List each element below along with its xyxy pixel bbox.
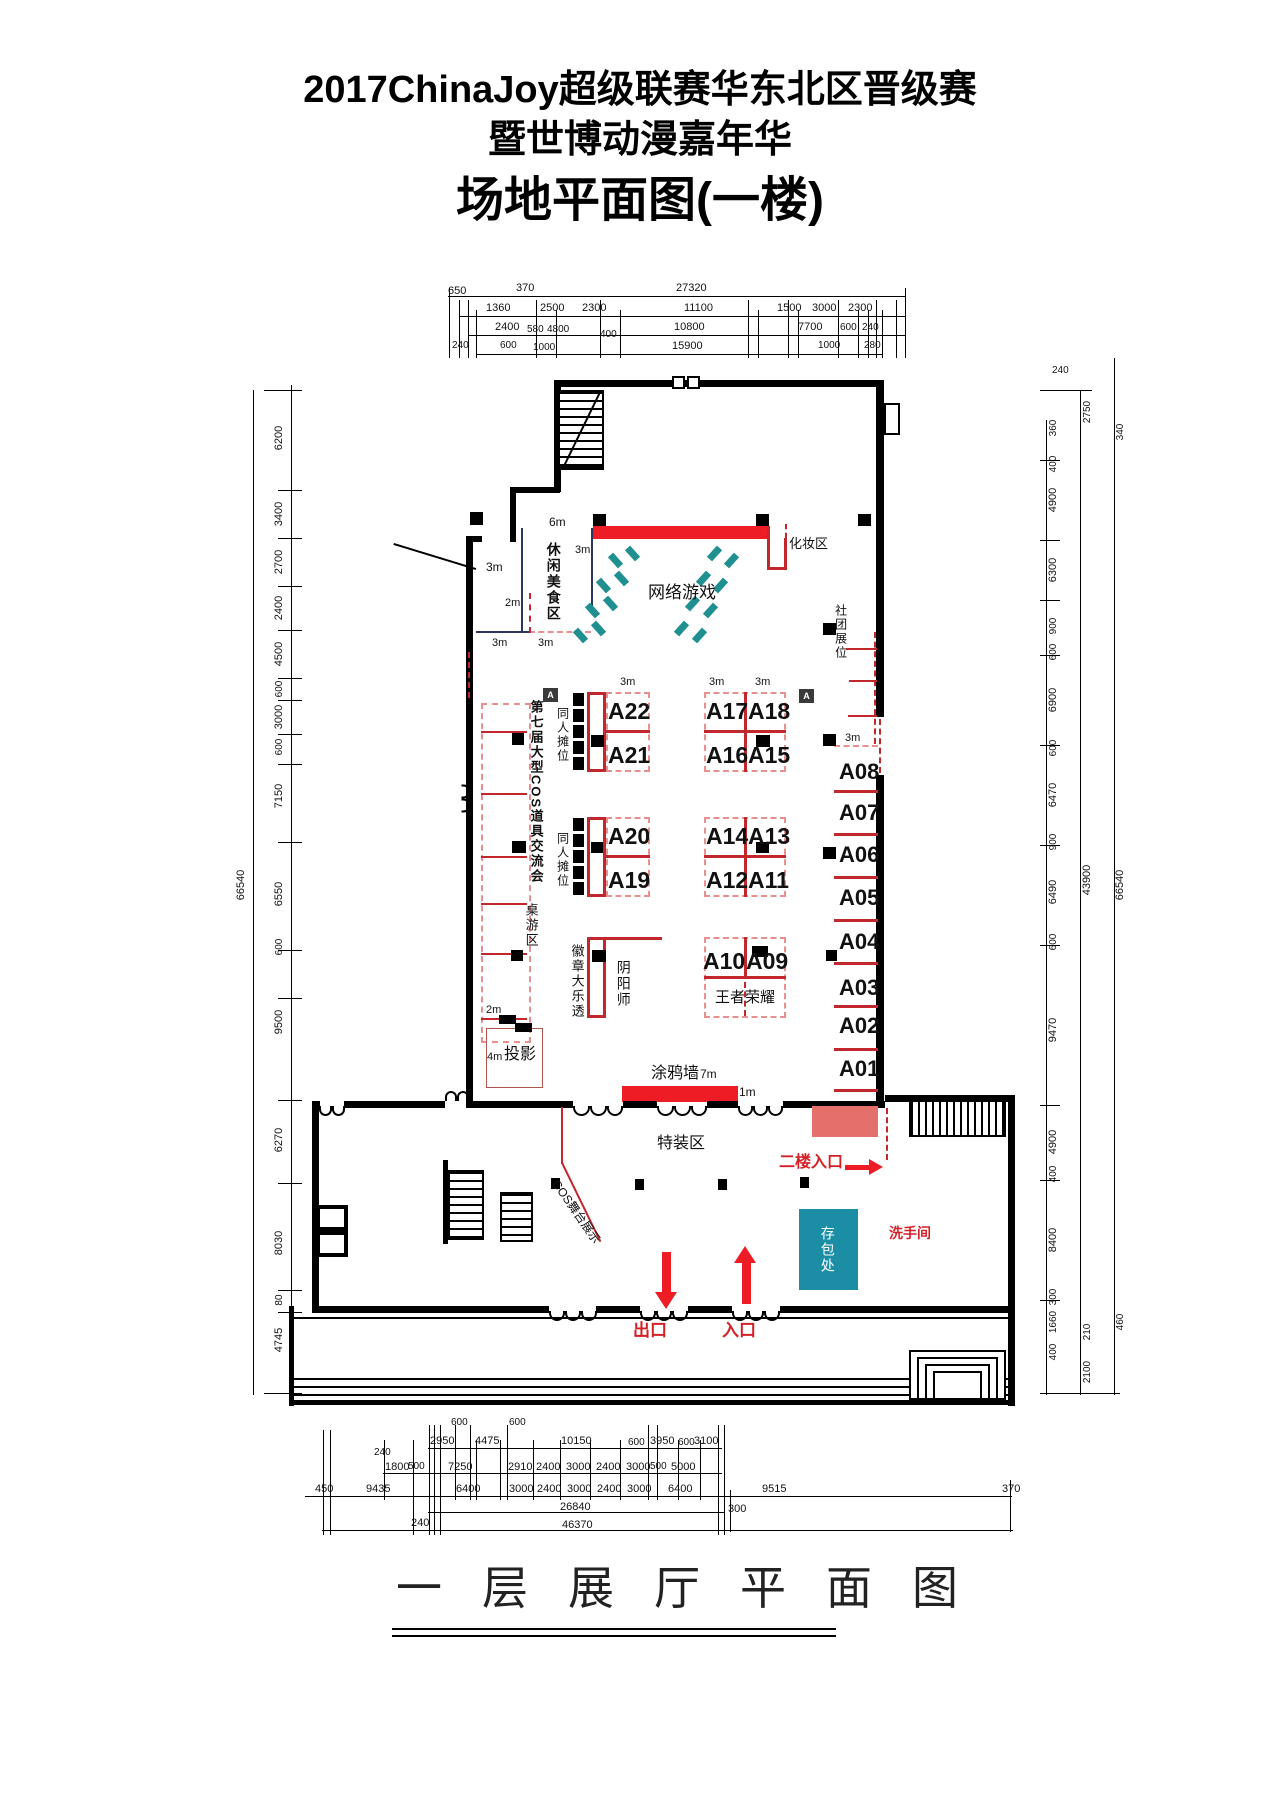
column-marker: A: [543, 688, 558, 702]
dim-left: 3000: [274, 705, 286, 729]
dimtick-left: [278, 764, 302, 765]
pillar: [823, 734, 836, 746]
booth-a20: A20: [608, 824, 650, 848]
dim-top: 1000: [818, 341, 840, 352]
door-arc-up: [445, 1091, 457, 1101]
booth-a07: A07: [839, 801, 879, 824]
dimtick-left: [278, 630, 302, 631]
wall-strip-top: [312, 1306, 549, 1313]
seat: [603, 596, 618, 612]
door-squiggle-2f: [886, 1108, 888, 1160]
dim-top: 27320: [676, 283, 707, 295]
dim-right: 9470: [1048, 1018, 1060, 1042]
door-arc: [748, 1311, 764, 1321]
dim-top: 240: [862, 323, 879, 334]
acol-divider: [834, 1048, 878, 1051]
acol-divider: [834, 790, 878, 793]
zone-doujin-booth: 同人摊位: [556, 707, 569, 763]
pillar: [756, 514, 769, 526]
doujin-tick: [573, 725, 584, 738]
dimtick-left: [278, 1290, 302, 1291]
dim-left: 7150: [274, 784, 286, 808]
door-arc: [657, 1106, 674, 1116]
dimtick-top: [449, 288, 450, 358]
door-arc: [732, 1311, 748, 1321]
pillar: [635, 1179, 644, 1190]
dim-right: 460: [1116, 1314, 1127, 1331]
acol-divider: [834, 1005, 878, 1008]
zone-label: 6m: [549, 516, 566, 529]
acol-divider: [834, 962, 878, 965]
dimtick-left: [278, 700, 302, 701]
seat: [674, 621, 689, 637]
zone-leisure-food: 休闲美食区: [546, 542, 561, 622]
cosprops-dashed: [481, 703, 531, 1043]
dimtick-bottom: [700, 1440, 701, 1500]
dim-bottom: 500: [650, 1462, 667, 1473]
booth-a19: A19: [608, 868, 650, 892]
dimtick-left: [278, 538, 302, 539]
dim-bottom: 2400: [596, 1462, 620, 1474]
dim-top: 600: [840, 323, 857, 334]
page-subtitle: 场地平面图(一楼): [0, 160, 1280, 230]
zone-network-games: 网络游戏: [648, 584, 716, 602]
dim-left: 600: [275, 939, 286, 956]
wall-stair: [443, 1160, 448, 1244]
page-title-line2: 暨世博动漫嘉年华: [0, 108, 1280, 163]
dim-right: 400: [1049, 1166, 1060, 1183]
dimtick-top: [748, 300, 749, 358]
zone-label: 3m: [755, 677, 770, 689]
dim-bottom: 9435: [366, 1484, 390, 1496]
dimline-top: [448, 296, 905, 297]
foodzone-line: [521, 528, 523, 633]
club-tick: [848, 715, 877, 717]
wall-strip-top: [688, 1306, 732, 1313]
zone-projection: 投影: [504, 1047, 536, 1064]
door-top-leaf: [687, 376, 700, 389]
strip-line: [293, 1317, 1011, 1319]
dimtick-top: [882, 310, 883, 358]
floor-plan-document: 2017ChinaJoy超级联赛华东北区晋级赛 暨世博动漫嘉年华 场地平面图(一…: [0, 0, 1280, 1810]
dim-right: 210: [1083, 1324, 1094, 1341]
dim-right: 4900: [1048, 1130, 1060, 1154]
dim-bottom: 300: [728, 1504, 746, 1516]
dim-left: 8030: [274, 1231, 286, 1255]
doujin-tick: [573, 850, 584, 863]
dim-top: 580: [527, 325, 544, 336]
page-title-line1: 2017ChinaJoy超级联赛华东北区晋级赛: [0, 58, 1280, 113]
dim-left: 4745: [274, 1328, 286, 1352]
booth-a16: A16: [706, 743, 748, 767]
door-arc: [549, 1311, 565, 1321]
dim-bottom: 3000: [567, 1484, 591, 1496]
booth-frame: [587, 692, 606, 772]
strip-line: [293, 1394, 1011, 1396]
dim-right: 600: [1049, 934, 1060, 951]
dim-bottom: 10150: [561, 1436, 592, 1448]
booth-divider: [704, 976, 786, 979]
dim-bottom: 3950: [650, 1436, 674, 1448]
dim-bottom: 2400: [597, 1484, 621, 1496]
acol-dash-top: [834, 745, 878, 747]
dim-bottom: 4475: [475, 1436, 499, 1448]
wall-hall-bottom: [707, 1101, 738, 1108]
caption-underline: [392, 1628, 836, 1630]
door-arc: [753, 1106, 768, 1116]
dim-left: 600: [275, 681, 286, 698]
booth-a17: A17: [706, 699, 748, 723]
dimtick-left: [278, 1183, 302, 1184]
wall-strip-top: [596, 1306, 640, 1313]
dim-bottom: 600: [451, 1418, 468, 1429]
dim-bottom: 6400: [668, 1484, 692, 1496]
dim-bottom: 450: [315, 1484, 333, 1496]
dim-right: 6300: [1048, 558, 1060, 582]
doujin-tick: [573, 757, 584, 770]
pillar: [800, 1177, 809, 1188]
foodzone-line: [591, 528, 593, 606]
pillar: [515, 1023, 532, 1032]
pointer-line: [393, 543, 476, 570]
dim-right: 2100: [1083, 1361, 1094, 1383]
wall-top: [554, 380, 884, 387]
dim-top: 1360: [486, 303, 510, 315]
pillar: [592, 950, 606, 962]
pillar: [823, 847, 836, 859]
door-arc: [590, 1106, 607, 1116]
dim-bottom: 600: [678, 1438, 695, 1449]
makeup-dash: [785, 524, 787, 538]
club-tick: [849, 680, 877, 682]
doujin-tick: [573, 882, 584, 895]
dimline-bottom: [322, 1530, 1013, 1531]
dimtick-top: [905, 288, 906, 358]
dim-top: 10800: [674, 322, 705, 334]
wall-hall-bottom: [623, 1101, 657, 1108]
stage-bar: [593, 526, 768, 539]
booth-divider: [704, 855, 786, 858]
pink-block: [812, 1106, 878, 1137]
doujin-tick: [573, 818, 584, 831]
dim-right: 360: [1049, 420, 1060, 437]
dimtick-bottom: [724, 1425, 725, 1535]
dim-right: 6470: [1048, 783, 1060, 807]
stair-base-line: [558, 468, 604, 470]
zone-club-booth: 社团展位: [834, 604, 847, 660]
seat: [625, 546, 640, 562]
arrow-down-shaft: [662, 1252, 671, 1294]
caption-underline: [392, 1635, 836, 1637]
dim-bottom: 240: [374, 1448, 391, 1459]
dim-right: 6900: [1048, 688, 1060, 712]
zone-label: 3m: [575, 545, 590, 557]
door-arc: [691, 1106, 707, 1116]
wall-right-upper: [876, 380, 884, 717]
doujin-tick: [573, 834, 584, 847]
seat: [596, 578, 611, 594]
dim-bottom: 600: [628, 1438, 645, 1449]
dim-left: 9500: [274, 1010, 286, 1034]
dim-right: 600: [1049, 644, 1060, 661]
dim-bottom: 3100: [694, 1436, 718, 1448]
dim-right: 240: [1052, 366, 1069, 377]
door-arc: [319, 1106, 332, 1116]
foodzone-line: [476, 631, 529, 633]
wall-left-mid: [510, 487, 516, 542]
door-arc: [581, 1311, 597, 1321]
cos-stage-line: [561, 1107, 563, 1164]
dimtick-top: [858, 310, 859, 358]
dimtick-left: [278, 998, 302, 999]
dim-top: 7700: [798, 322, 822, 334]
dim-left: 3400: [274, 502, 286, 526]
dim-right: 8400: [1048, 1228, 1060, 1252]
pillar: [591, 735, 604, 747]
zone-makeup: 化妆区: [789, 537, 828, 551]
acol-divider: [834, 876, 878, 879]
pillar: [511, 950, 523, 961]
zone-label: 3m: [709, 677, 724, 689]
booth-a15: A15: [748, 743, 790, 767]
dim-bottom: 3000: [509, 1484, 533, 1496]
dimtick-bottom: [500, 1440, 501, 1500]
booth-a06: A06: [839, 843, 879, 866]
zone-boardgame: 桌游区: [524, 903, 538, 948]
dimtick-top: [896, 300, 897, 358]
dimtick-left: [278, 490, 302, 491]
strip-line: [293, 1386, 1011, 1388]
zone-label: 2m: [505, 598, 520, 610]
dim-bottom: 2950: [430, 1436, 454, 1448]
strip-line: [293, 1378, 1011, 1380]
dim-bottom: 26840: [560, 1502, 591, 1514]
cosprops-tick: [481, 793, 527, 795]
dim-left: 80: [275, 1294, 286, 1305]
wall-step: [510, 487, 560, 493]
dim-right: 66540: [1115, 870, 1127, 901]
door-arc: [573, 1106, 590, 1116]
door-arc: [656, 1311, 672, 1321]
zone-restroom: 洗手间: [889, 1226, 931, 1241]
seat: [614, 571, 629, 587]
booth-a22: A22: [608, 699, 650, 723]
dim-top: 1500: [777, 303, 801, 315]
zone-cos-props: 第七届大型COS道具交流会: [529, 700, 543, 884]
dim-right: 400: [1049, 1344, 1060, 1361]
booth-divider: [606, 730, 650, 733]
makeup-wall: [784, 538, 787, 570]
zone-kings-glory: 王者荣耀: [715, 990, 775, 1006]
dim-bottom: 7250: [448, 1462, 472, 1474]
dim-top: 4800: [547, 325, 569, 336]
wall-left-main: [466, 536, 473, 1108]
dim-bottom: 3000: [566, 1462, 590, 1474]
arrow-2f-shaft: [845, 1165, 869, 1170]
stair-lower: [448, 1170, 484, 1240]
doujin-tick: [573, 693, 584, 706]
dim-bottom: 2400: [537, 1484, 561, 1496]
dim-top: 400: [600, 330, 617, 341]
wall-strip-top: [780, 1306, 1015, 1313]
booth-a03: A03: [839, 976, 879, 999]
acol-divider: [834, 919, 878, 922]
acol-divider: [834, 833, 878, 836]
seat: [703, 603, 718, 619]
zone-label: 3m: [486, 561, 503, 574]
zone-label: 3m: [845, 733, 860, 745]
dimline-left: [291, 385, 292, 1395]
dim-bottom: 9515: [762, 1484, 786, 1496]
dimtick-left: [264, 390, 302, 391]
booth-a04: A04: [839, 930, 879, 953]
room-small: [316, 1231, 348, 1257]
door-arc: [764, 1311, 780, 1321]
seat: [724, 553, 739, 569]
dim-bottom: 240: [411, 1518, 429, 1530]
dimtick-right: [1040, 540, 1060, 541]
dim-top: 11100: [684, 303, 713, 315]
arrow-up-shaft: [742, 1262, 751, 1304]
graffiti-bar: [622, 1086, 738, 1102]
booth-divider: [606, 855, 650, 858]
dim-right: 1660: [1049, 1311, 1060, 1333]
dim-top: 2300: [582, 303, 606, 315]
wall-hall-bottom: [468, 1101, 573, 1108]
arrow-down-head: [655, 1292, 677, 1309]
dim-top: 650: [448, 286, 466, 298]
dim-bottom: 2910: [508, 1462, 532, 1474]
pillar: [512, 733, 524, 745]
bottom-caption: 一层展厅平面图: [396, 1552, 998, 1618]
arrow-2f-head: [869, 1159, 883, 1175]
dim-top: 15900: [672, 341, 703, 353]
dimtick-left: [278, 734, 302, 735]
dim-left: 2700: [274, 550, 286, 574]
dim-bottom: 3000: [626, 1462, 650, 1474]
dim-right: 4900: [1048, 488, 1060, 512]
door-arc: [768, 1106, 783, 1116]
stair-lower: [500, 1192, 533, 1242]
booth-a09: A09: [746, 949, 788, 973]
booth-a12: A12: [706, 868, 748, 892]
doujin-tick: [573, 709, 584, 722]
dim-left: 6550: [274, 882, 286, 906]
pillar: [826, 950, 837, 961]
dim-bottom: 2400: [536, 1462, 560, 1474]
dimtick-right: [1040, 1393, 1120, 1394]
label-exit: 出口: [633, 1322, 667, 1340]
wall-lower-top: [344, 1101, 445, 1108]
booth-divider: [704, 730, 786, 733]
zone-special-booth: 特装区: [657, 1136, 705, 1153]
booth-a02: A02: [839, 1014, 879, 1037]
pillar: [470, 512, 483, 525]
seat: [585, 603, 600, 619]
zone-badge-lottery: 徽章大乐透: [570, 944, 584, 1019]
wall-right-bump: [884, 403, 900, 435]
dimtick-left: [278, 586, 302, 587]
door-arc: [674, 1106, 691, 1116]
dim-left: 6270: [274, 1128, 286, 1152]
dim-top: 240: [452, 341, 469, 352]
dim-left: 6200: [274, 426, 286, 450]
door-arc: [738, 1106, 753, 1116]
dim-left: 2400: [274, 596, 286, 620]
booth-frame: [587, 817, 606, 897]
booth-a05: A05: [839, 886, 879, 909]
booth-a10: A10: [703, 949, 745, 973]
wall-right-outer: [1008, 1095, 1015, 1406]
dim-bottom: 500: [408, 1462, 425, 1473]
pillar: [718, 1179, 727, 1190]
dim-top: 2400: [495, 322, 519, 334]
dimtick-top: [476, 310, 477, 358]
column-marker: A: [799, 689, 814, 703]
dim-right: 6490: [1048, 880, 1060, 904]
dim-right: 900: [1049, 834, 1060, 851]
dim-right: 340: [1116, 424, 1127, 441]
zone-doujin-booth: 同人摊位: [556, 832, 569, 888]
dim-bottom: 1800: [385, 1462, 409, 1474]
booth-a13: A13: [748, 824, 790, 848]
makeup-wall: [767, 526, 770, 570]
foodzone-dash: [529, 593, 531, 633]
dim-right: 300: [1049, 1289, 1060, 1306]
door-top-leaf: [672, 376, 685, 389]
dim-right: 600: [1049, 740, 1060, 757]
zone-locker: 存包处: [820, 1226, 835, 1274]
dim-bottom: 3000: [627, 1484, 651, 1496]
zone-cos-stage: COS舞台展示: [550, 1178, 603, 1246]
pillar: [858, 514, 871, 526]
dim-right: 43900: [1082, 865, 1094, 896]
dimtick-top: [758, 310, 759, 358]
seat: [707, 546, 722, 562]
dim-top: 600: [500, 341, 517, 352]
dimtick-right: [1040, 600, 1060, 601]
seat: [608, 553, 623, 569]
pillar: [512, 841, 526, 853]
zone-label: 1m: [739, 1086, 756, 1099]
zone-label: 2m: [486, 1005, 501, 1017]
step-block: [933, 1371, 982, 1400]
zone-label: 3m: [492, 638, 507, 650]
door-arc-up: [457, 1091, 469, 1101]
club-dash: [874, 632, 876, 744]
zone-label: 3m: [620, 677, 635, 689]
dim-top: 280: [864, 341, 881, 352]
dim-bottom: 600: [509, 1418, 526, 1429]
club-tick: [846, 648, 877, 650]
dimtick-left: [278, 678, 302, 679]
stair-2f: [909, 1097, 1006, 1137]
door-arc: [672, 1311, 688, 1321]
dim-left: 4500: [274, 642, 286, 666]
doujin-tick: [573, 741, 584, 754]
zone-label: 7m: [700, 1068, 717, 1081]
booth-a14: A14: [706, 824, 748, 848]
pillar: [591, 842, 603, 853]
seat: [573, 628, 588, 644]
dim-left: 66540: [236, 870, 248, 901]
strip-bottom: [289, 1400, 1015, 1405]
dim-top: 2500: [540, 303, 564, 315]
door-arc: [565, 1311, 581, 1321]
wall-lowerright-top: [885, 1095, 1008, 1102]
booth-a01: A01: [839, 1057, 879, 1080]
dimline-bottom: [305, 1496, 1012, 1497]
